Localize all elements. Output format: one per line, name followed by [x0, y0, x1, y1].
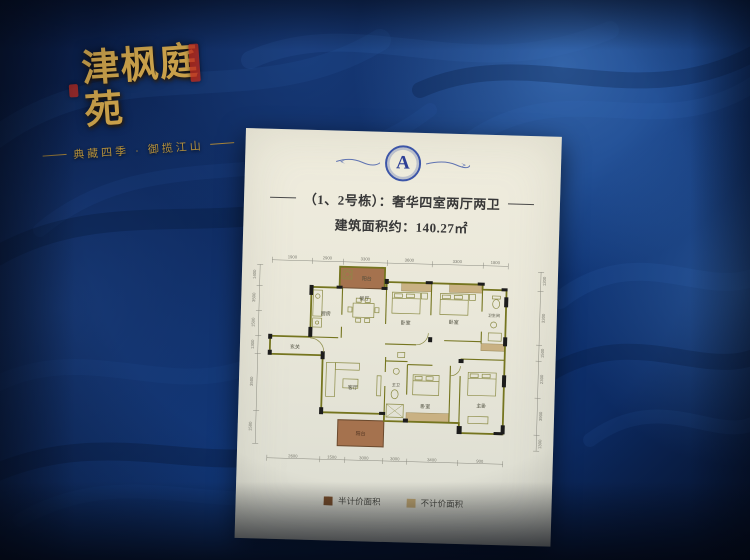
svg-text:1500: 1500 — [540, 348, 545, 358]
svg-text:1500: 1500 — [248, 421, 253, 431]
legend-label-half-priced: 半计价面积 — [338, 495, 381, 508]
svg-text:1800: 1800 — [491, 260, 501, 265]
svg-text:2900: 2900 — [323, 255, 333, 260]
svg-text:3400: 3400 — [427, 457, 437, 462]
svg-text:1900: 1900 — [288, 254, 298, 259]
legend-swatch-half-priced — [324, 496, 333, 505]
svg-text:1400: 1400 — [252, 269, 257, 279]
room-label-kitchen: 厨房 — [321, 310, 331, 317]
svg-text:1500: 1500 — [327, 454, 337, 459]
svg-text:1200: 1200 — [542, 276, 547, 286]
emblem-letter: A — [396, 152, 410, 174]
dimension-lines — [252, 256, 545, 468]
svg-text:2600: 2600 — [288, 453, 298, 458]
unit-title-rule-right — [508, 203, 534, 205]
project-branding: 津枫庭苑 典藏四季 · 御揽江山 — [36, 38, 233, 165]
emblem-flourish-right-icon — [426, 158, 470, 171]
legend-swatch-non-priced — [406, 498, 415, 507]
room-label-bedroom-3: 卧室 — [420, 403, 430, 410]
floorplan-drawing: 1900 2900 3300 3600 3300 1800 2600 1500 … — [244, 250, 550, 480]
unit-title-rule-left — [270, 196, 296, 198]
unit-title-text: （1、2号栋）：奢华四室两厅两卫 — [304, 189, 501, 213]
room-label-balcony-bottom: 阳台 — [355, 430, 365, 437]
emblem-flourish-left-icon — [336, 156, 380, 169]
svg-text:3600: 3600 — [405, 257, 415, 262]
room-label-living: 客厅 — [348, 384, 358, 391]
svg-text:3300: 3300 — [361, 256, 371, 261]
unit-title: （1、2号栋）：奢华四室两厅两卫 — [244, 187, 560, 215]
room-label-bath: 卫生间 — [488, 312, 500, 318]
plan-legend: 半计价面积 不计价面积 — [236, 492, 552, 513]
svg-text:3000: 3000 — [359, 455, 369, 460]
svg-text:3300: 3300 — [453, 259, 463, 264]
balcony-areas — [335, 267, 388, 447]
svg-text:1500: 1500 — [250, 317, 255, 327]
svg-text:3900: 3900 — [538, 411, 543, 421]
floorplan-poster: A （1、2号栋）：奢华四室两厅两卫 建筑面积约：140.27㎡ — [235, 128, 562, 547]
tagline-rule-left — [42, 154, 66, 157]
svg-text:3500: 3500 — [251, 292, 256, 302]
emblem-circle: A — [385, 145, 422, 182]
room-label-master: 主卧 — [476, 403, 486, 410]
legend-label-non-priced: 不计价面积 — [420, 497, 463, 510]
seal-stamp-left — [69, 84, 79, 98]
svg-text:3300: 3300 — [541, 313, 546, 323]
svg-text:1300: 1300 — [250, 339, 255, 349]
room-label-balcony-top: 阳台 — [362, 275, 372, 282]
legend-item-non-priced: 不计价面积 — [406, 497, 463, 511]
emblem: A — [245, 141, 562, 186]
room-label-master-bath: 主卫 — [392, 381, 400, 387]
svg-text:3500: 3500 — [249, 376, 254, 386]
svg-text:2300: 2300 — [539, 374, 544, 384]
svg-text:3000: 3000 — [390, 456, 400, 461]
legend-item-half-priced: 半计价面积 — [324, 494, 381, 508]
svg-text:1300: 1300 — [537, 439, 542, 449]
tagline-rule-right — [211, 142, 235, 145]
area-text: 建筑面积约：140.27㎡ — [243, 212, 559, 240]
photo-scene: 津枫庭苑 典藏四季 · 御揽江山 A （1、2号栋）：奢华四室两厅两卫 — [0, 0, 750, 560]
room-label-entry: 玄关 — [290, 343, 300, 350]
project-title: 津枫庭苑 — [80, 38, 231, 132]
room-label-dining: 餐厅 — [359, 295, 369, 302]
room-label-bedroom-2: 卧室 — [449, 319, 459, 326]
closet-areas — [398, 283, 507, 424]
room-label-bedroom-1: 卧室 — [401, 319, 411, 326]
svg-text:900: 900 — [476, 459, 484, 464]
